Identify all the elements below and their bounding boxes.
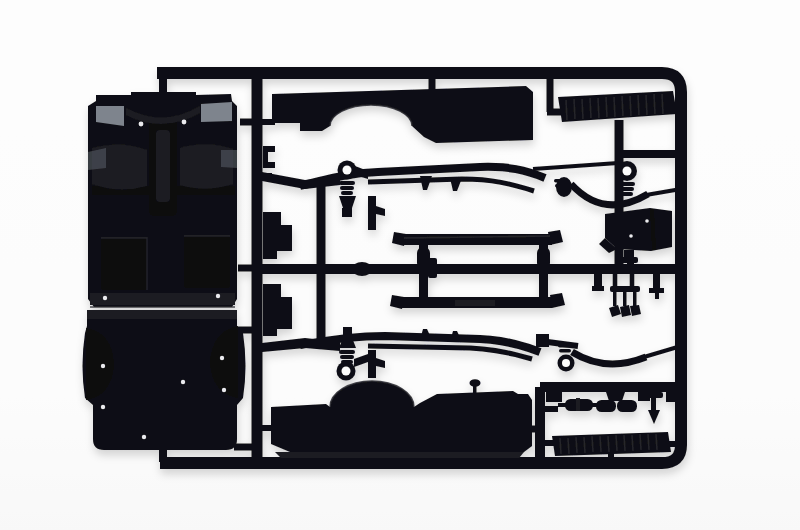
- bed-floor-header: [87, 310, 237, 319]
- hump-sheen-right: [221, 150, 237, 168]
- cab-floor-sill: [90, 293, 235, 305]
- floor-recess-left: [101, 238, 147, 290]
- shock-absorber-lower: [368, 350, 376, 378]
- muffler-band: [576, 398, 580, 411]
- bump-stop-coil: [339, 350, 355, 354]
- lever-knob: [470, 379, 481, 387]
- part-pedal-set: [609, 286, 641, 317]
- part-running-board-lower: [552, 432, 671, 456]
- tunnel-top: [156, 130, 170, 202]
- model-kit-sprue-photo: [0, 0, 800, 530]
- bump-stop-coil: [339, 181, 355, 185]
- floor-recess-right: [184, 236, 230, 288]
- ladder-notch: [455, 300, 495, 306]
- screenshot-photo: [0, 0, 800, 530]
- shock-absorber-upper: [368, 196, 376, 230]
- cowl-highlight-right: [201, 102, 232, 122]
- gate-node: [352, 262, 372, 276]
- panel-flange: [275, 452, 524, 458]
- ladder-clip: [428, 258, 437, 278]
